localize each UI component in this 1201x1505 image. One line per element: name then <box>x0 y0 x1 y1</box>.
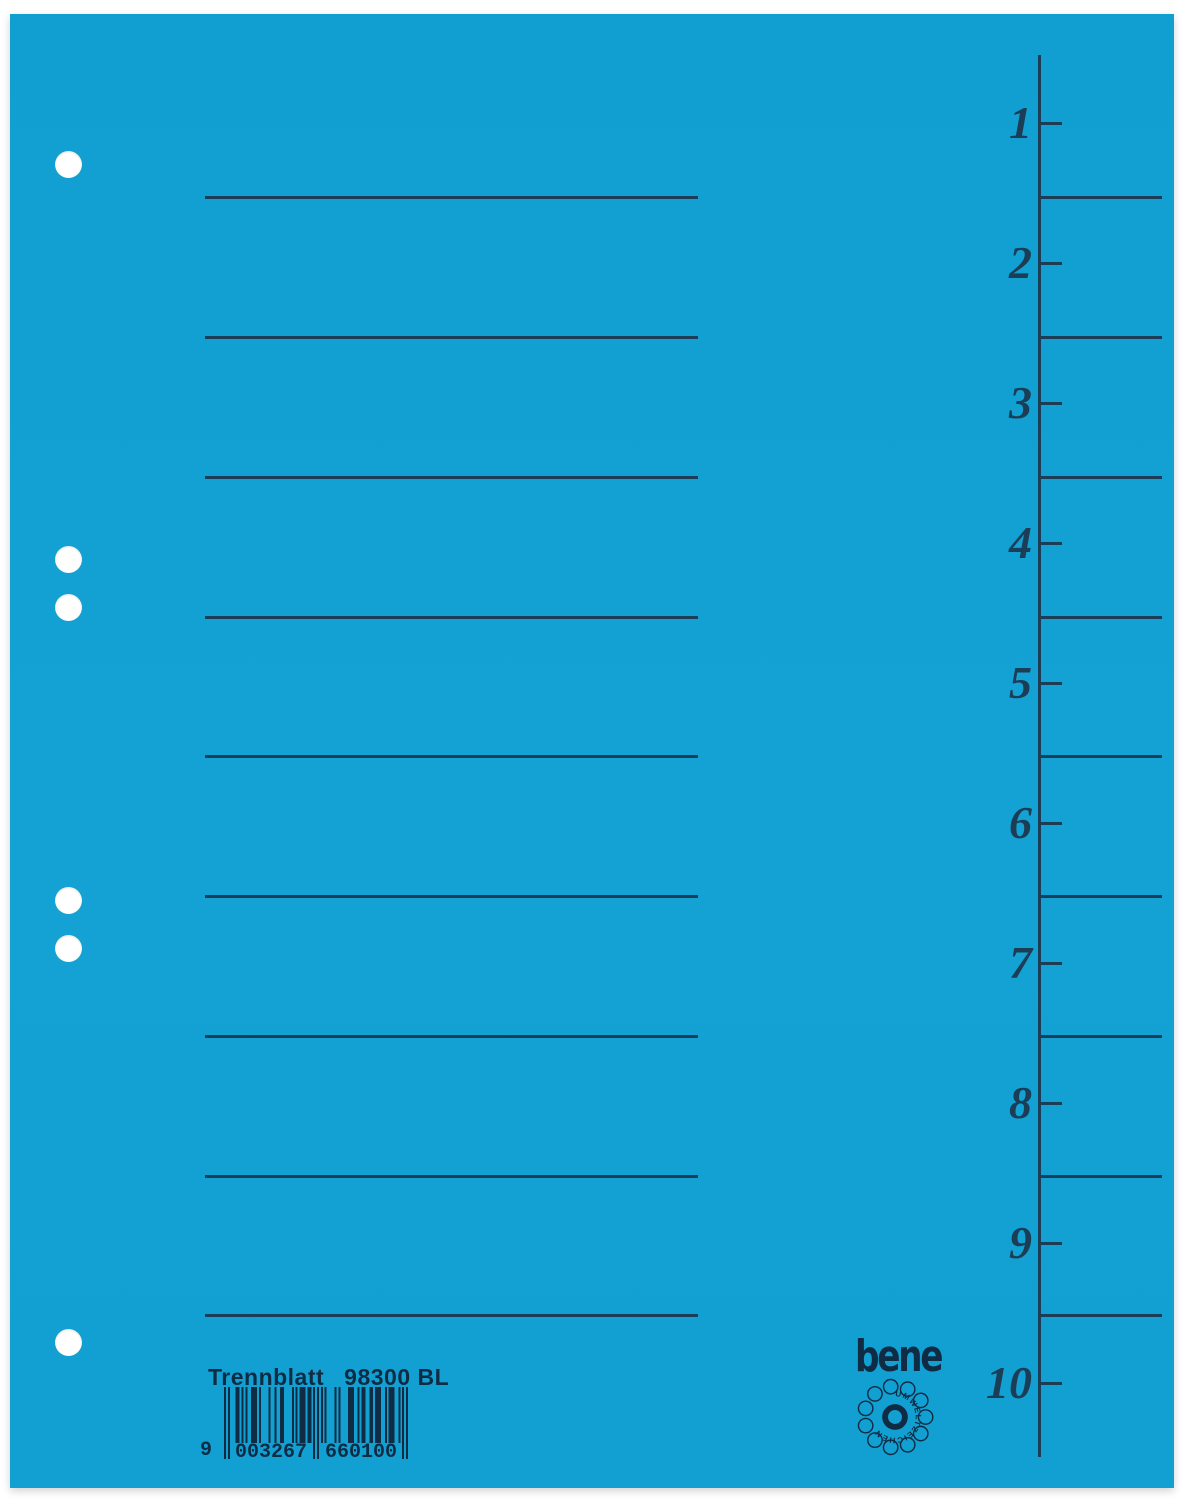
index-number-8: 8 <box>942 1071 1032 1135</box>
sheet: 1 2 3 4 5 6 7 8 9 10 Trennblatt 98300 BL… <box>10 14 1174 1488</box>
punch-hole <box>55 1329 82 1356</box>
index-number-1: 1 <box>942 91 1032 155</box>
index-number-3: 3 <box>942 371 1032 435</box>
page-background: 1 2 3 4 5 6 7 8 9 10 Trennblatt 98300 BL… <box>0 0 1201 1505</box>
index-separator <box>1038 895 1162 898</box>
writing-line <box>205 1175 698 1178</box>
index-tick <box>1038 1242 1062 1245</box>
punch-hole <box>55 546 82 573</box>
index-tick <box>1038 1382 1062 1385</box>
index-separator <box>1038 616 1162 619</box>
index-tick <box>1038 122 1062 125</box>
writing-line <box>205 476 698 479</box>
index-number-9: 9 <box>942 1211 1032 1275</box>
writing-line <box>205 1035 698 1038</box>
index-separator <box>1038 1035 1162 1038</box>
index-tick <box>1038 262 1062 265</box>
punch-hole <box>55 594 82 621</box>
punch-hole <box>55 151 82 178</box>
index-tick <box>1038 822 1062 825</box>
barcode-digits-group1: 003267 <box>235 1443 307 1463</box>
product-name-label: Trennblatt <box>208 1365 324 1389</box>
index-separator <box>1038 1175 1162 1178</box>
index-tick <box>1038 1102 1062 1105</box>
writing-line <box>205 755 698 758</box>
index-number-10: 10 <box>942 1351 1032 1415</box>
article-number: 98300 BL <box>344 1365 449 1389</box>
writing-line <box>205 895 698 898</box>
punch-hole <box>55 887 82 914</box>
index-number-6: 6 <box>942 791 1032 855</box>
index-tick <box>1038 542 1062 545</box>
barcode: 9 003267 660100 <box>194 1387 444 1479</box>
barcode-digits-group2: 660100 <box>325 1443 397 1463</box>
writing-line <box>205 616 698 619</box>
barcode-lead-digit: 9 <box>200 1441 212 1461</box>
writing-line <box>205 336 698 339</box>
writing-line <box>205 196 698 199</box>
writing-line <box>205 1314 698 1317</box>
product-label-row: Trennblatt 98300 BL <box>208 1365 449 1389</box>
index-separator <box>1038 196 1162 199</box>
index-number-7: 7 <box>942 931 1032 995</box>
punch-hole <box>55 935 82 962</box>
index-separator <box>1038 336 1162 339</box>
index-tick <box>1038 402 1062 405</box>
index-number-4: 4 <box>942 511 1032 575</box>
index-tick <box>1038 682 1062 685</box>
index-number-2: 2 <box>942 231 1032 295</box>
index-separator <box>1038 476 1162 479</box>
index-number-5: 5 <box>942 651 1032 715</box>
eco-emblem: UMWELTZEICHEN <box>850 1372 940 1462</box>
index-tick <box>1038 962 1062 965</box>
index-separator <box>1038 755 1162 758</box>
index-separator <box>1038 1314 1162 1317</box>
